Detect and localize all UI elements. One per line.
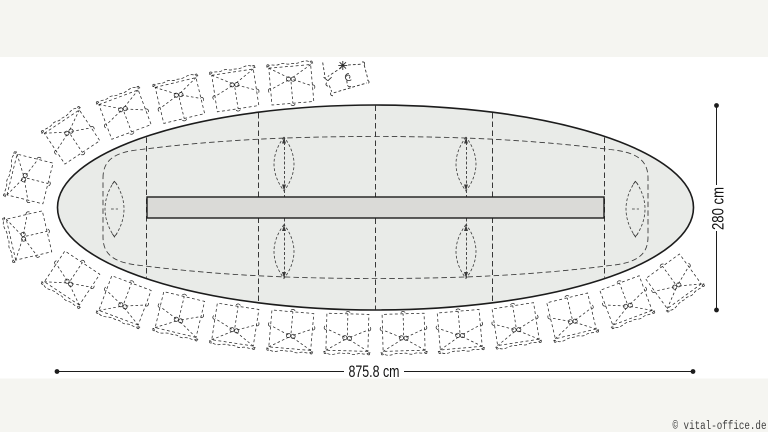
svg-text:280 cm: 280 cm	[710, 187, 728, 230]
svg-text:© vital-office.de: © vital-office.de	[673, 420, 767, 432]
svg-text:875.8 cm: 875.8 cm	[349, 363, 400, 381]
